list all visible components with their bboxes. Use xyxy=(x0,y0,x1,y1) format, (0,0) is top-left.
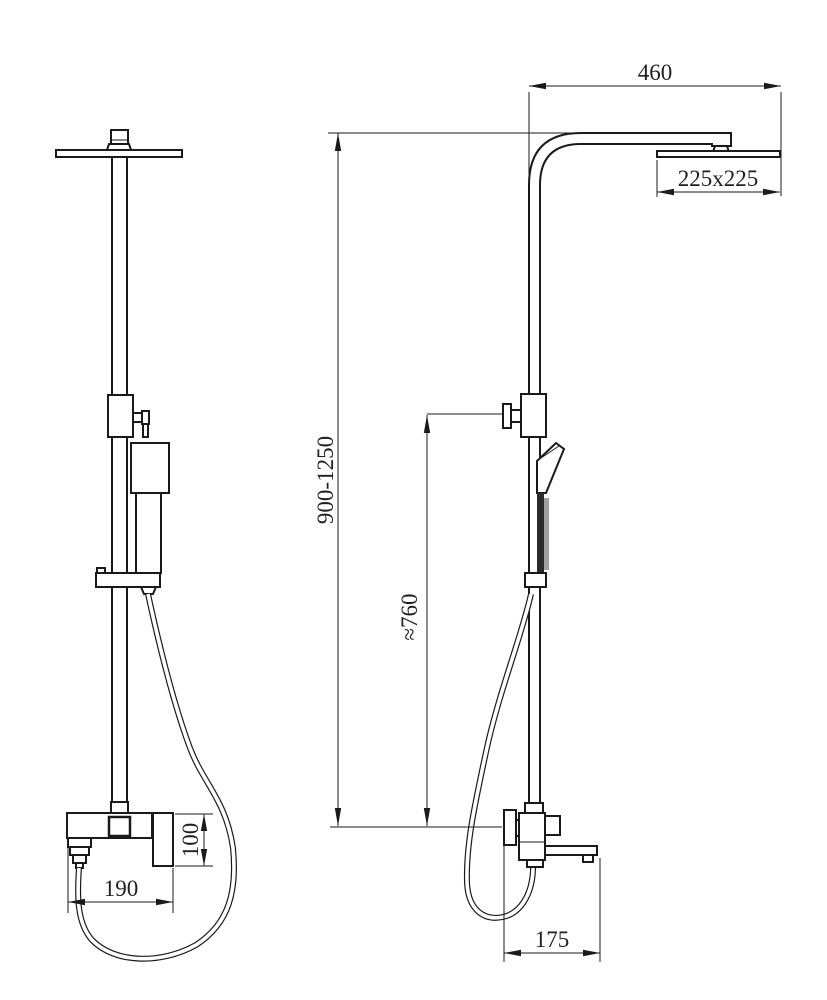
shower-column-drawing: 460 225x225 900-1250 ≈760 xyxy=(0,0,827,1000)
outlet-stub-front xyxy=(76,863,83,868)
pipe-collar-front xyxy=(111,802,128,813)
knob-stem-side xyxy=(511,410,521,422)
knob-flange-side xyxy=(503,404,511,428)
label-riser-height: 900-1250 xyxy=(313,436,338,524)
handheld-handle-side xyxy=(537,493,544,572)
head-connector-front xyxy=(111,130,128,144)
label-head-size: 225x225 xyxy=(678,166,759,191)
mixer-body-side xyxy=(519,813,545,860)
mixer-right-block-side xyxy=(545,816,560,835)
slide-bracket-side xyxy=(525,573,546,587)
mixer-handle-block-front xyxy=(153,813,173,866)
spout-outlet-side xyxy=(583,855,593,862)
dimension-spout-reach: 175 xyxy=(504,846,600,962)
riser-pipe-front xyxy=(112,157,127,803)
handle-shadow-side xyxy=(544,498,549,570)
handle-flange-side xyxy=(504,810,516,845)
handheld-handle-front xyxy=(136,493,161,573)
slider-block-front xyxy=(108,395,133,437)
overhead-shower-plate-side xyxy=(657,151,780,157)
label-hose-drop: ≈760 xyxy=(397,593,422,640)
overhead-shower-plate-front xyxy=(56,150,182,157)
knob-front xyxy=(142,411,149,424)
dimension-head-size: 225x225 xyxy=(657,160,780,197)
riser-pipe-side xyxy=(529,133,731,803)
slider-block-side xyxy=(521,394,546,437)
pipe-collar-side xyxy=(525,803,543,813)
knob-stem-front xyxy=(133,413,142,422)
slide-bracket-front xyxy=(96,573,160,587)
dimension-annotations: 460 225x225 900-1250 ≈760 xyxy=(68,60,781,962)
outlet-nut-front xyxy=(73,855,86,863)
label-arm-length: 460 xyxy=(638,60,673,85)
handheld-head-front xyxy=(131,443,169,493)
spout-side xyxy=(545,846,597,855)
technical-drawing-page: 460 225x225 900-1250 ≈760 xyxy=(0,0,827,1000)
label-mixer-width: 190 xyxy=(104,876,139,901)
hose-side xyxy=(467,594,533,918)
dimension-mixer-height: 100 xyxy=(175,814,213,866)
knob-pin-front xyxy=(143,424,148,437)
outlet-step1-front xyxy=(68,838,91,847)
mixer-bottom-connector-side xyxy=(527,860,543,867)
hose-connector-front xyxy=(141,587,156,594)
label-spout-reach: 175 xyxy=(535,927,570,952)
side-view xyxy=(467,133,780,918)
handheld-head-side xyxy=(537,443,564,493)
outlet-step2-front xyxy=(70,847,89,855)
mixer-center-square-front xyxy=(109,817,130,836)
front-view xyxy=(56,130,234,959)
label-mixer-height: 100 xyxy=(178,823,203,858)
